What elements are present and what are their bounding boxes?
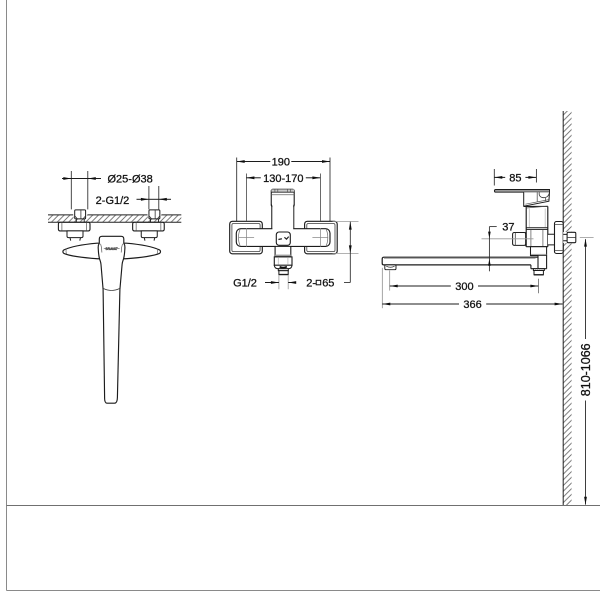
svg-text:Ø25-Ø38: Ø25-Ø38 — [108, 173, 153, 185]
svg-text:65: 65 — [322, 278, 334, 290]
svg-text:810-1066: 810-1066 — [579, 343, 593, 396]
svg-text:85: 85 — [509, 172, 521, 184]
svg-text:300: 300 — [455, 281, 473, 293]
svg-text:2-: 2- — [306, 278, 316, 290]
svg-text:BRAVAT: BRAVAT — [106, 247, 118, 251]
svg-text:G1/2: G1/2 — [233, 278, 257, 290]
svg-text:2-G1/2: 2-G1/2 — [96, 195, 130, 207]
svg-text:37: 37 — [502, 221, 514, 233]
svg-text:366: 366 — [463, 299, 481, 311]
svg-text:190: 190 — [272, 157, 290, 169]
svg-text:130-170: 130-170 — [263, 173, 303, 185]
